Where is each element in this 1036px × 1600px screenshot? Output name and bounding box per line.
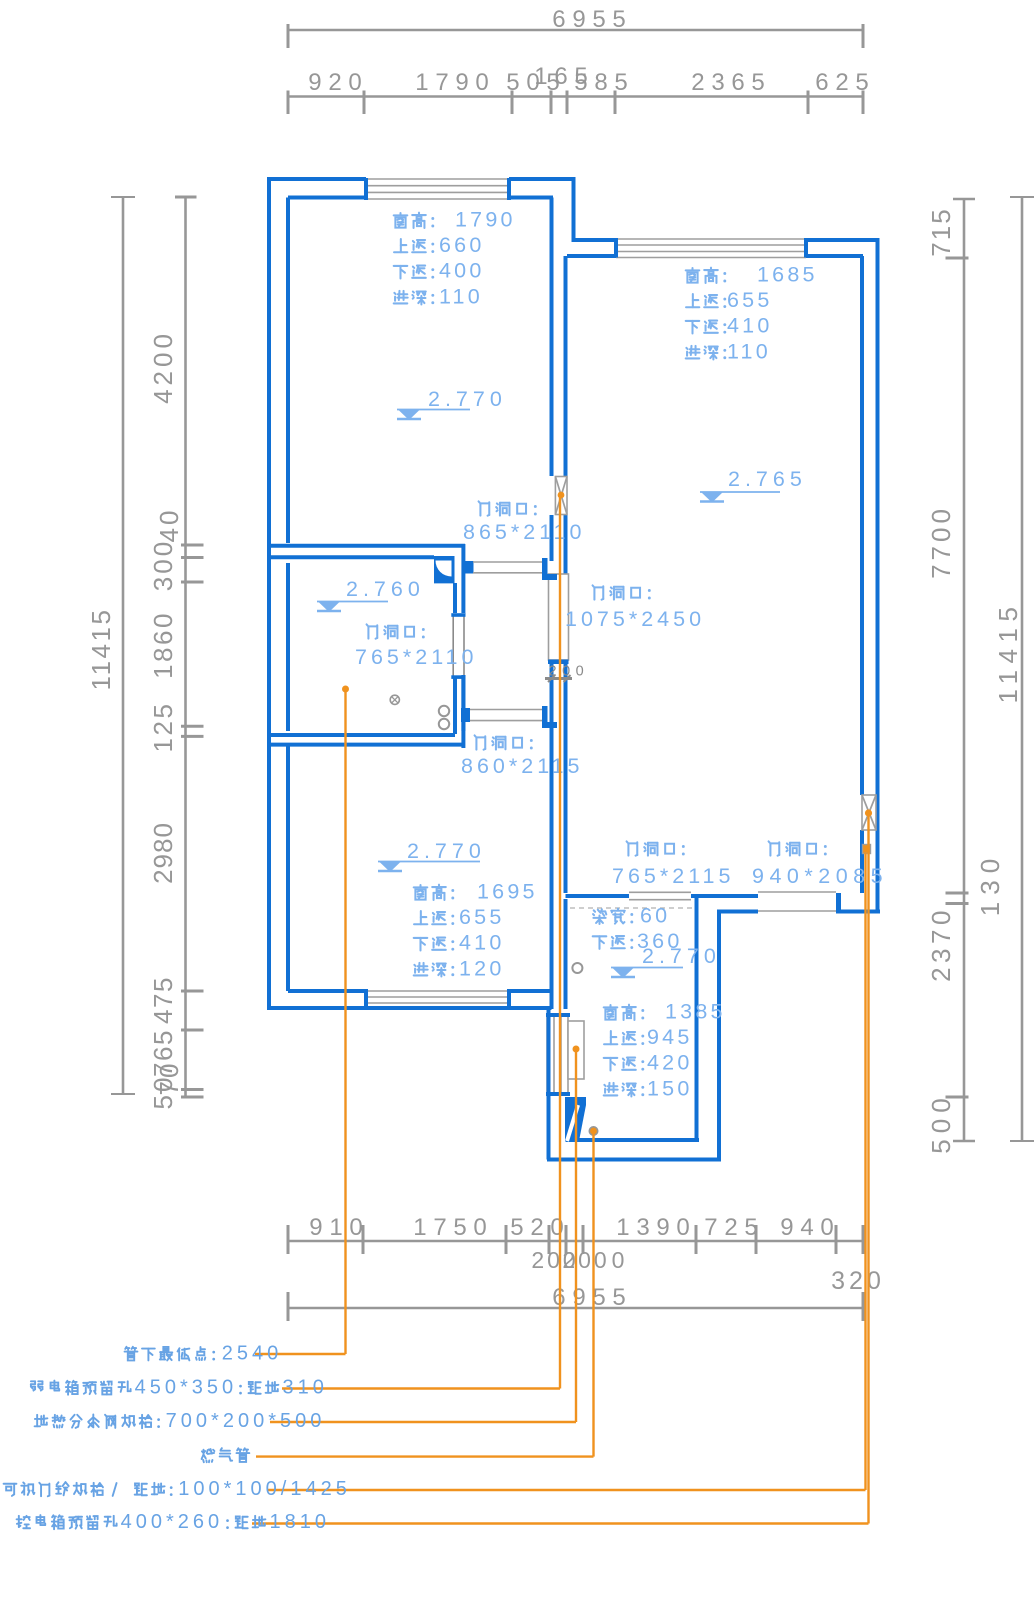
svg-text:655: 655 [459,905,504,929]
svg-text:110: 110 [727,339,771,363]
svg-text:200: 200 [562,1247,609,1273]
svg-text:2.770: 2.770 [407,839,486,863]
svg-text:2980: 2980 [148,822,178,884]
svg-text:2.760: 2.760 [346,577,425,601]
svg-text:2 3 6 5: 2 3 6 5 [691,69,764,96]
svg-text:655: 655 [727,288,772,312]
svg-text:450*350: 450*350 [135,1377,238,1399]
svg-text:2370: 2370 [926,906,956,982]
svg-text:715: 715 [926,207,956,256]
svg-text:50: 50 [148,1075,178,1110]
svg-text:0: 0 [612,1247,625,1273]
svg-text:6 9 5 5: 6 9 5 5 [552,1284,625,1311]
svg-text:400: 400 [439,259,484,283]
svg-text:9 4 0: 9 4 0 [780,1214,833,1241]
svg-text:120: 120 [459,956,504,980]
svg-text:1 7 5 0: 1 7 5 0 [413,1214,486,1241]
svg-text:420: 420 [647,1051,692,1075]
svg-text:945: 945 [647,1025,692,1049]
svg-text:310: 310 [282,1377,327,1399]
svg-text:475: 475 [148,976,178,1024]
svg-text:9 2 0: 9 2 0 [308,69,361,96]
svg-text:2.770: 2.770 [428,387,507,411]
svg-text:1860: 1860 [148,611,178,679]
svg-text:1790: 1790 [455,207,516,231]
svg-text:410: 410 [459,931,504,955]
svg-text:660: 660 [439,233,484,257]
svg-text:360: 360 [637,929,682,953]
svg-text:1075*2450: 1075*2450 [565,607,705,631]
svg-text:1685: 1685 [757,262,818,286]
svg-text:300: 300 [148,539,178,591]
svg-text:4200: 4200 [148,330,178,404]
svg-text:60: 60 [640,903,670,927]
svg-text:40: 40 [154,508,184,543]
svg-text:2540: 2540 [222,1343,282,1365]
svg-text:1810: 1810 [269,1511,330,1533]
svg-text:2.765: 2.765 [728,467,807,491]
svg-text:1 3 9 0: 1 3 9 0 [616,1214,689,1241]
svg-text:5 2 0: 5 2 0 [510,1214,563,1241]
svg-text:130: 130 [975,852,1005,916]
svg-text:9 1 0: 9 1 0 [309,1214,362,1241]
svg-text:110: 110 [439,284,483,308]
svg-text:865*2110: 865*2110 [463,520,585,544]
svg-text:410: 410 [727,314,772,338]
svg-text:11415: 11415 [993,601,1023,704]
svg-text:7 2 5: 7 2 5 [704,1214,757,1241]
svg-text:7700: 7700 [926,505,956,579]
svg-text:1385: 1385 [665,999,726,1023]
svg-text:765*2110: 765*2110 [355,645,477,669]
svg-text:1695: 1695 [477,879,538,903]
svg-text:1 7 9 0: 1 7 9 0 [415,69,488,96]
svg-text:320: 320 [831,1267,885,1295]
svg-text:6 2 5: 6 2 5 [815,69,868,96]
svg-text:150: 150 [647,1076,692,1100]
svg-text:765*2115: 765*2115 [612,864,734,888]
svg-text:500: 500 [926,1092,956,1153]
svg-text:100*100/1425: 100*100/1425 [178,1478,351,1500]
svg-text:125: 125 [148,702,178,753]
svg-text:11415: 11415 [86,608,116,691]
svg-text:5 8 5: 5 8 5 [574,69,627,96]
svg-text:400*260: 400*260 [121,1511,224,1533]
svg-text:700*200*500: 700*200*500 [166,1410,326,1432]
svg-text:860*2115: 860*2115 [461,754,583,778]
svg-text:6 9 5 5: 6 9 5 5 [552,6,625,33]
